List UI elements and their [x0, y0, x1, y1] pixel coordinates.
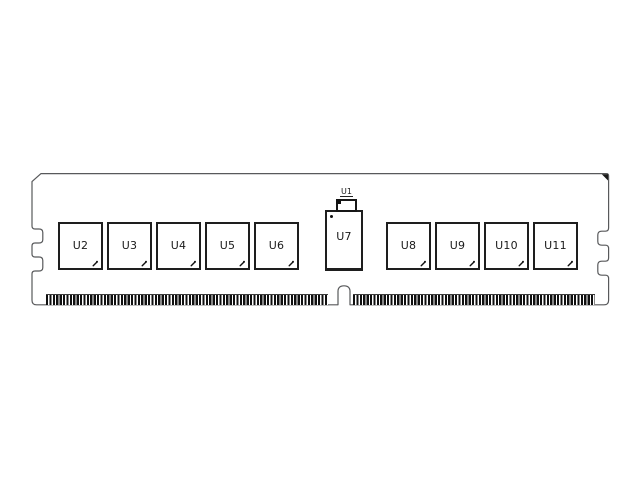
chip-u8: U8: [386, 222, 431, 270]
pin1-dot-icon: [330, 215, 333, 218]
memory-module-diagram: U2 U3 U4 U5 U6 U7 U1: [0, 0, 640, 480]
chip-u11: U11: [533, 222, 578, 270]
pin1-mark-icon: [239, 260, 246, 267]
chip-u9: U9: [435, 222, 480, 270]
connector-pins-left: [46, 294, 328, 305]
chip-u4-label: U4: [171, 239, 186, 252]
chip-u6-label: U6: [269, 239, 284, 252]
component-u1-label: U1: [340, 187, 353, 197]
pin1-mark-icon: [141, 260, 148, 267]
chip-u10-label: U10: [495, 239, 518, 252]
chip-u9-label: U9: [450, 239, 465, 252]
chip-u2-label: U2: [73, 239, 88, 252]
chip-u7: U7: [325, 210, 363, 271]
pin1-mark-icon: [469, 260, 476, 267]
pin1-mark-icon: [420, 260, 427, 267]
chip-u10: U10: [484, 222, 529, 270]
connector-pins-right: [353, 294, 595, 305]
pin1-mark-icon: [190, 260, 197, 267]
pin1-mark-icon: [567, 260, 574, 267]
component-u1-body: [336, 199, 357, 212]
chip-u7-label: U7: [336, 230, 351, 243]
chip-u3: U3: [107, 222, 152, 270]
chip-u11-label: U11: [544, 239, 567, 252]
chip-u2: U2: [58, 222, 103, 270]
chip-u5: U5: [205, 222, 250, 270]
chip-u5-label: U5: [220, 239, 235, 252]
pin1-square-icon: [336, 199, 341, 204]
chip-u4: U4: [156, 222, 201, 270]
chip-u3-label: U3: [122, 239, 137, 252]
chip-u6: U6: [254, 222, 299, 270]
component-u1: U1: [330, 179, 363, 212]
pin1-mark-icon: [518, 260, 525, 267]
chip-u8-label: U8: [401, 239, 416, 252]
pin1-mark-icon: [92, 260, 99, 267]
pin1-mark-icon: [288, 260, 295, 267]
